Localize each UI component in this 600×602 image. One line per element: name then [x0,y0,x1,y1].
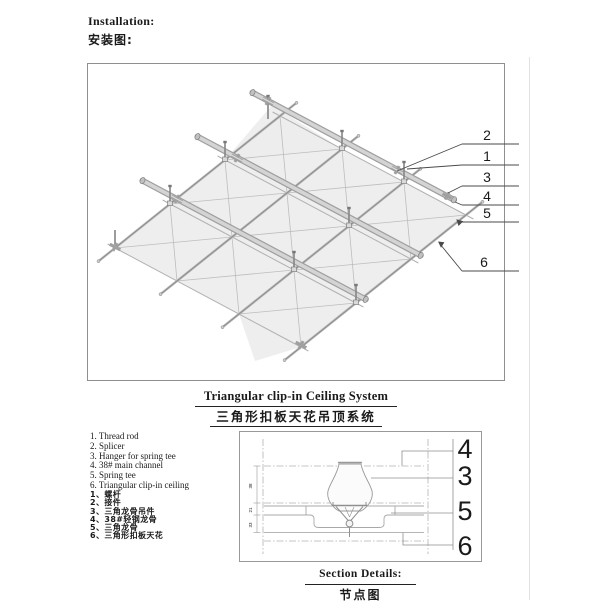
callout-1: 1 [483,148,491,164]
installation-sheet: { "header": { "en": "Installation:", "zh… [0,0,600,600]
section-callout-5: 5 [457,496,472,526]
legend-item: 6、三角形扣板天花 [90,532,163,540]
isometric-ceiling-diagram: 2 1 3 4 5 6 [87,63,505,381]
sheet-edge-line [529,57,530,600]
callout-6: 6 [480,254,488,270]
legend-chinese: 1、螺杆 2、接件 3、三角龙骨吊件 4、38#轻钢龙骨 5、三角龙骨 6、三角… [90,491,163,541]
legend-english: 1. Thread rod 2. Splicer 3. Hanger for s… [90,432,189,491]
section-callout-6: 6 [457,531,472,561]
system-title: Triangular clip-in Ceiling System 三角形扣板天… [87,388,505,427]
section-callout-3: 3 [457,461,472,491]
section-detail-diagram: 38 21 33 4 3 5 6 [239,431,482,562]
callout-2: 2 [483,127,491,143]
section-title-zh: 节点图 [239,589,482,601]
callout-4: 4 [483,188,491,204]
callout-5: 5 [483,205,491,221]
section-title: Section Details: 节点图 [239,565,482,601]
page-title-zh: 安装图: [88,31,133,48]
dim-label: 21 [248,507,253,513]
dim-label: 33 [248,522,253,528]
page-title-en: Installation: [88,14,155,29]
dim-label: 38 [248,483,253,489]
section-title-en: Section Details: [305,569,416,585]
section-callout-4: 4 [457,434,472,464]
section-callout-numbers: 4 3 5 6 [457,434,472,561]
system-title-zh: 三角形扣板天花吊顶系统 [210,411,382,428]
callout-3: 3 [483,169,491,185]
system-title-en: Triangular clip-in Ceiling System [195,390,397,407]
